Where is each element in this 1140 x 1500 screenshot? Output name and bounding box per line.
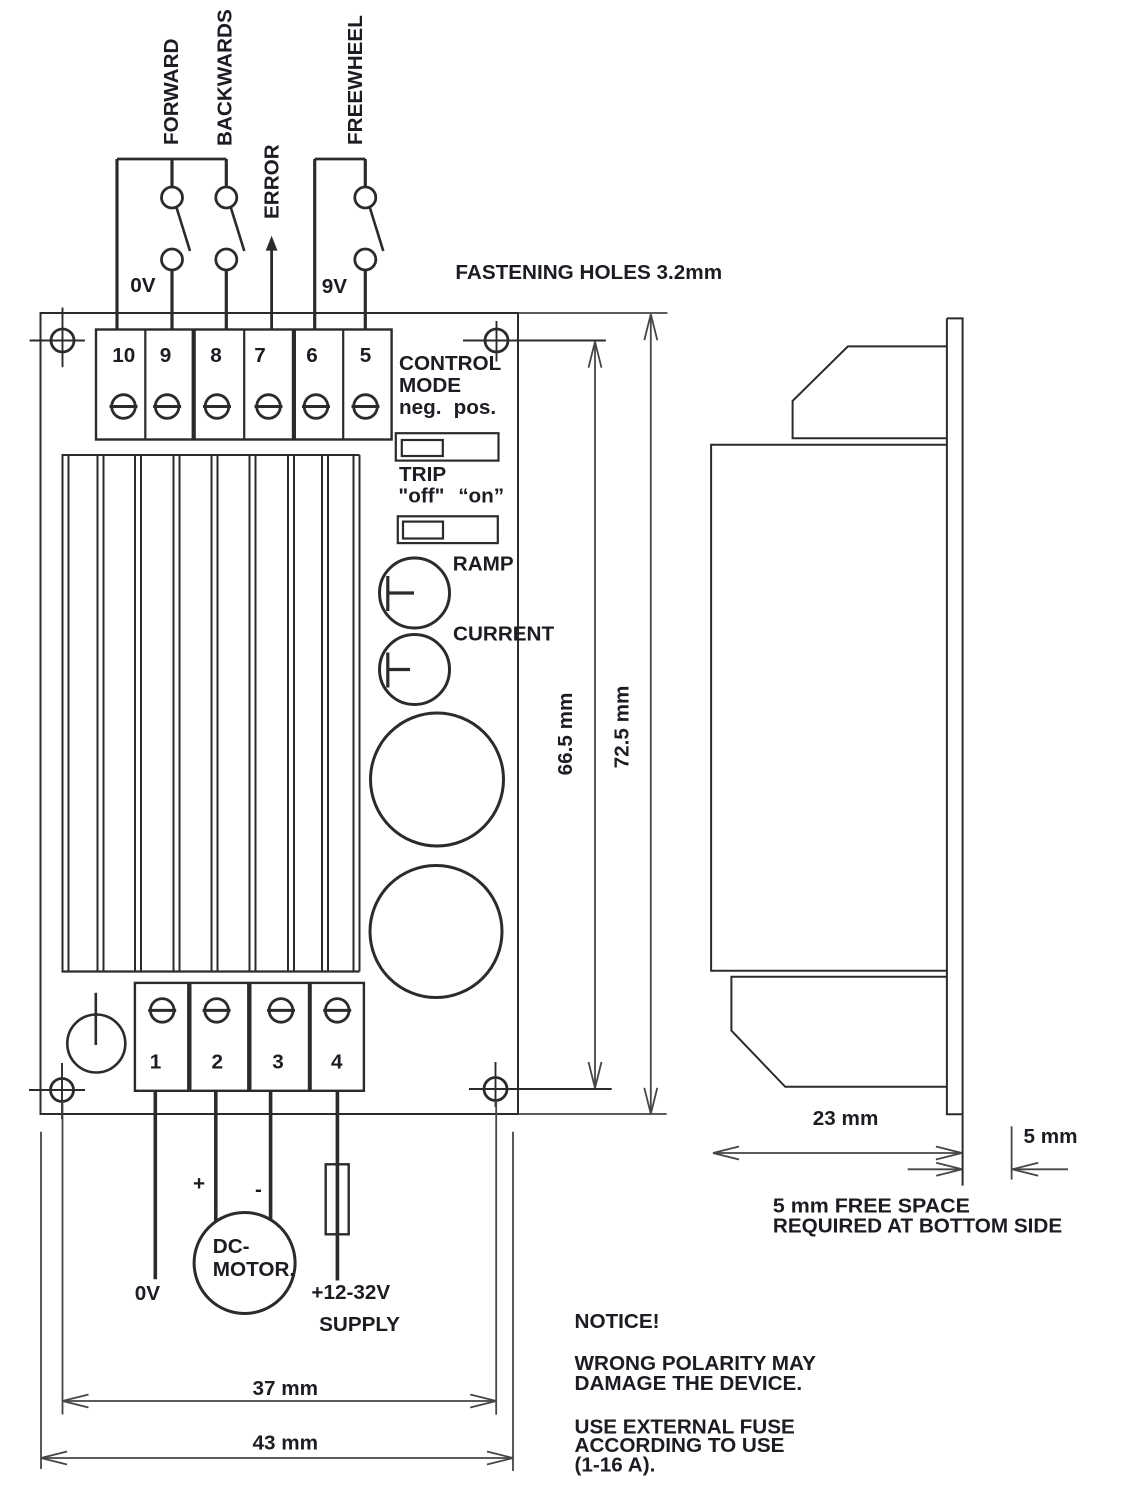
svg-text:BACKWARDS: BACKWARDS bbox=[214, 9, 237, 146]
svg-text:3: 3 bbox=[272, 1051, 284, 1074]
svg-text:10: 10 bbox=[112, 344, 135, 367]
svg-text:5: 5 bbox=[360, 344, 372, 367]
svg-text:SUPPLY: SUPPLY bbox=[319, 1313, 400, 1336]
svg-text:1: 1 bbox=[150, 1051, 162, 1074]
svg-text:66.5 mm: 66.5 mm bbox=[554, 693, 577, 776]
svg-text:DAMAGE THE DEVICE.: DAMAGE THE DEVICE. bbox=[575, 1372, 803, 1395]
svg-text:FORWARD: FORWARD bbox=[160, 38, 183, 145]
svg-text:0V: 0V bbox=[135, 1282, 161, 1305]
svg-text:43 mm: 43 mm bbox=[253, 1432, 319, 1455]
svg-text:4: 4 bbox=[331, 1051, 343, 1074]
svg-text:"off": "off" bbox=[398, 485, 444, 508]
svg-text:neg.: neg. bbox=[399, 396, 442, 419]
svg-text:0V: 0V bbox=[130, 274, 156, 297]
svg-text:+12-32V: +12-32V bbox=[311, 1281, 390, 1304]
svg-text:6: 6 bbox=[306, 344, 318, 367]
svg-text:CONTROL: CONTROL bbox=[399, 352, 501, 375]
svg-text:9V: 9V bbox=[322, 275, 348, 298]
svg-text:MOTOR.: MOTOR. bbox=[213, 1258, 295, 1281]
svg-text:FREEWHEEL: FREEWHEEL bbox=[344, 15, 367, 145]
svg-text:REQUIRED AT BOTTOM SIDE: REQUIRED AT BOTTOM SIDE bbox=[773, 1215, 1062, 1238]
svg-text:8: 8 bbox=[210, 344, 222, 367]
svg-text:72.5 mm: 72.5 mm bbox=[611, 686, 634, 769]
svg-text:CURRENT: CURRENT bbox=[453, 623, 554, 646]
svg-text:37 mm: 37 mm bbox=[253, 1377, 319, 1400]
svg-text:RAMP: RAMP bbox=[453, 553, 514, 576]
svg-text:23 mm: 23 mm bbox=[813, 1107, 879, 1130]
svg-text:ERROR: ERROR bbox=[261, 144, 284, 219]
svg-text:(1-16 A).: (1-16 A). bbox=[575, 1454, 656, 1477]
svg-text:5 mm: 5 mm bbox=[1024, 1125, 1078, 1148]
svg-text:-: - bbox=[255, 1178, 262, 1201]
svg-text:NOTICE!: NOTICE! bbox=[575, 1310, 660, 1333]
svg-text:+: + bbox=[193, 1172, 205, 1195]
svg-text:TRIP: TRIP bbox=[399, 463, 446, 486]
svg-text:9: 9 bbox=[160, 344, 172, 367]
svg-text:“on”: “on” bbox=[458, 485, 504, 508]
svg-text:7: 7 bbox=[254, 344, 266, 367]
svg-text:MODE: MODE bbox=[399, 374, 461, 397]
svg-text:2: 2 bbox=[212, 1051, 224, 1074]
svg-text:FASTENING HOLES 3.2mm: FASTENING HOLES 3.2mm bbox=[455, 261, 722, 284]
svg-text:pos.: pos. bbox=[454, 396, 497, 419]
svg-text:DC-: DC- bbox=[213, 1235, 250, 1258]
